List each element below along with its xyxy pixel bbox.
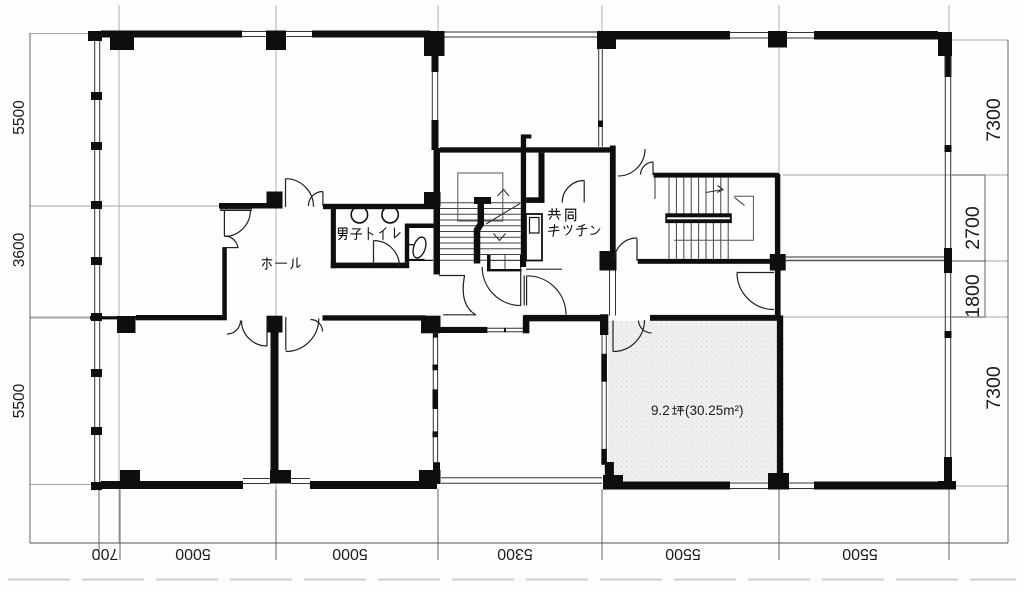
svg-text:5500: 5500: [665, 545, 701, 562]
svg-text:5000: 5000: [175, 545, 211, 562]
svg-text:700: 700: [92, 545, 119, 562]
svg-text:5500: 5500: [11, 383, 28, 418]
svg-text:5500: 5500: [11, 100, 28, 135]
svg-text:5000: 5000: [332, 545, 368, 562]
svg-text:1800: 1800: [962, 274, 984, 318]
svg-text:9.2: 9.2: [651, 403, 670, 418]
svg-text:7300: 7300: [983, 98, 1005, 142]
svg-text:7300: 7300: [983, 366, 1005, 410]
svg-text:(30.25m²): (30.25m²): [685, 403, 744, 418]
svg-text:5500: 5500: [842, 545, 878, 562]
svg-text:3600: 3600: [11, 232, 28, 267]
svg-text:2700: 2700: [962, 206, 984, 250]
svg-text:5300: 5300: [497, 545, 533, 562]
